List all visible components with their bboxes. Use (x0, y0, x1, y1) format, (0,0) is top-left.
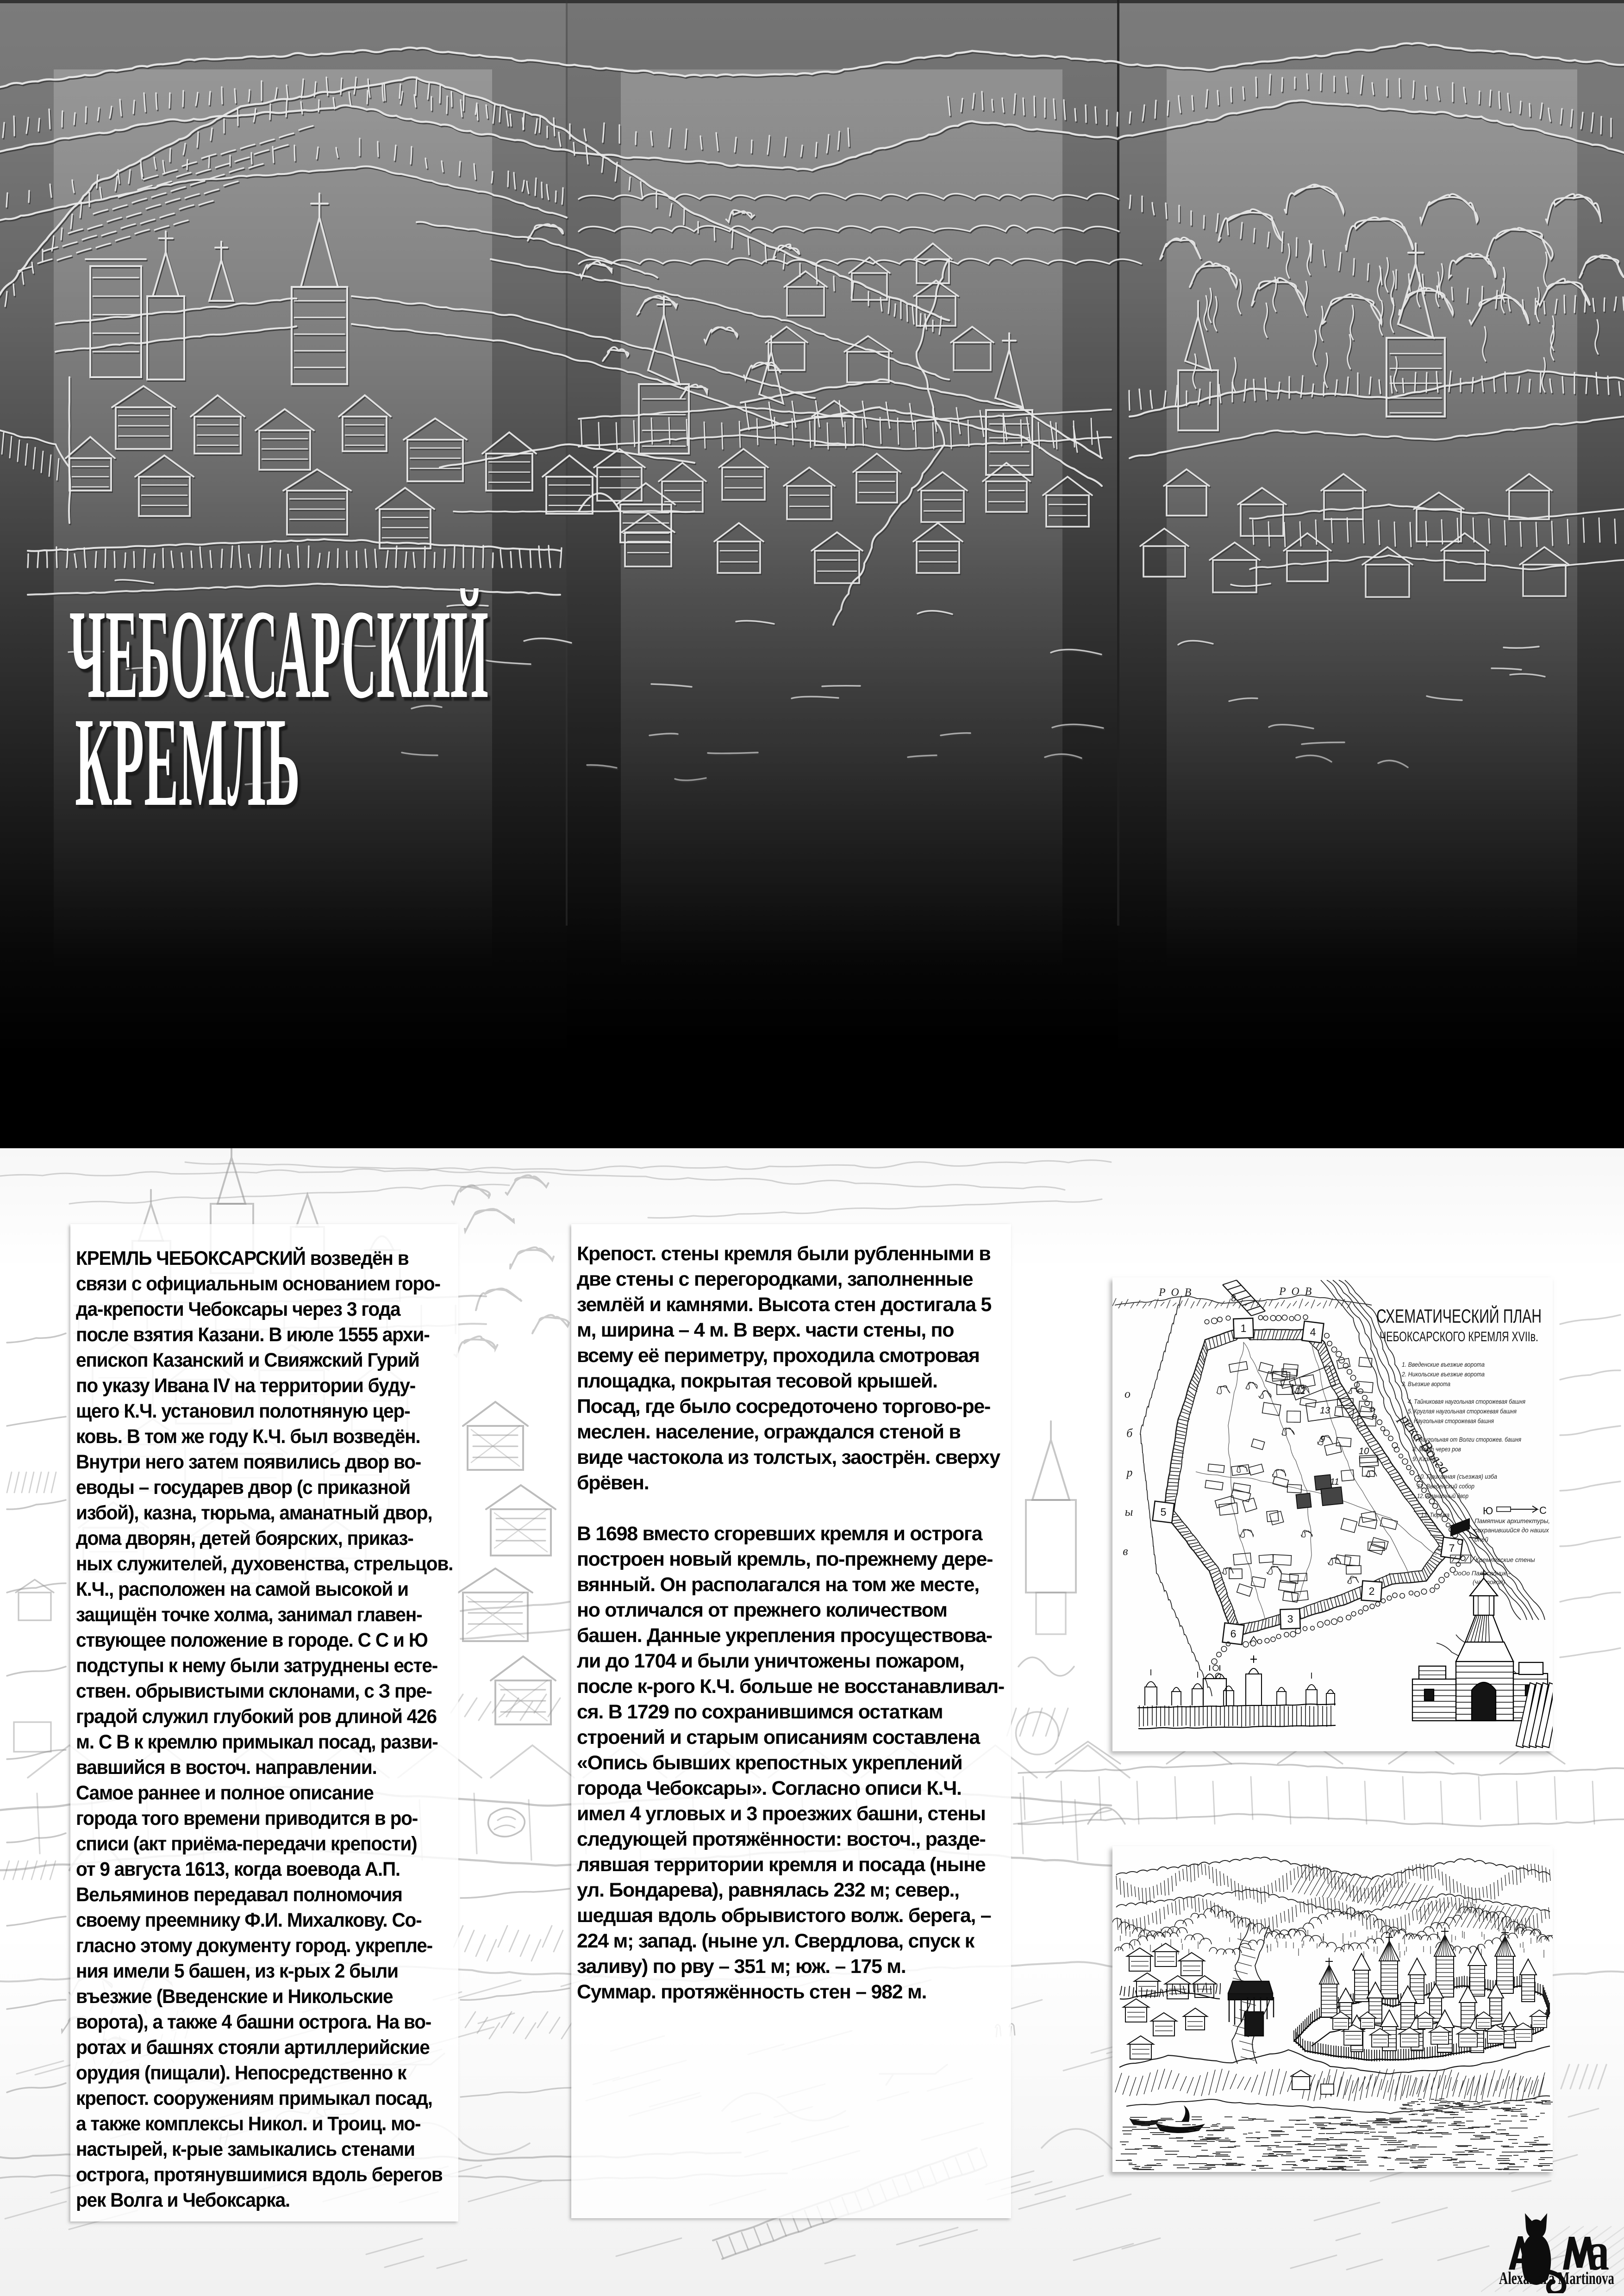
svg-text:3: 3 (1287, 1613, 1293, 1625)
svg-text:6. Наугольная сторожевая башня: 6. Наугольная сторожевая башня (1408, 1418, 1494, 1425)
svg-text:2: 2 (1369, 1585, 1375, 1597)
svg-text:ЧЕБОКСАРСКОГО КРЕМЛЯ XVIIв.: ЧЕБОКСАРСКОГО КРЕМЛЯ XVIIв. (1380, 1329, 1538, 1344)
svg-text:Памятник архитектуры,: Памятник архитектуры, (1474, 1518, 1550, 1524)
svg-text:о: о (1124, 1387, 1131, 1400)
svg-text:9. Казна: 9. Казна (1412, 1456, 1435, 1462)
svg-text:11. Введенский собор: 11. Введенский собор (1417, 1483, 1474, 1490)
svg-text:С: С (1539, 1505, 1547, 1516)
svg-text:дней: дней (1474, 1536, 1488, 1543)
svg-text:7. Наугольная от Волги стороже: 7. Наугольная от Волги сторожев. башня (1412, 1436, 1521, 1443)
svg-text:5: 5 (1161, 1506, 1167, 1518)
svg-text:9: 9 (1320, 1434, 1325, 1444)
svg-text:РОВ: РОВ (1158, 1287, 1197, 1299)
svg-text:Кремлевские стены: Кремлевские стены (1475, 1556, 1535, 1563)
svg-text:СХЕМАТИЧЕСКИЙ ПЛАН: СХЕМАТИЧЕСКИЙ ПЛАН (1376, 1305, 1542, 1327)
svg-text:РОВ: РОВ (1279, 1286, 1317, 1298)
svg-text:7: 7 (1449, 1542, 1455, 1554)
svg-text:Ю: Ю (1483, 1505, 1493, 1517)
svg-text:5. Круглая наугольная сторожев: 5. Круглая наугольная сторожевая башня (1408, 1408, 1517, 1415)
svg-text:б: б (1126, 1426, 1133, 1440)
svg-text:10. Приказная (съезжая) изба: 10. Приказная (съезжая) изба (1417, 1473, 1497, 1480)
svg-text:13: 13 (1320, 1406, 1330, 1416)
svg-text:ОоОо Палисадник -: ОоОо Палисадник - (1453, 1570, 1511, 1577)
svg-text:11: 11 (1330, 1477, 1339, 1487)
svg-text:1: 1 (1241, 1322, 1247, 1334)
svg-text:1. Введенские въезжие ворота: 1. Введенские въезжие ворота (1402, 1361, 1485, 1368)
svg-text:8: 8 (1231, 1294, 1236, 1304)
svg-text:6: 6 (1230, 1628, 1237, 1640)
svg-text:4: 4 (1310, 1326, 1316, 1338)
svg-text:р: р (1126, 1466, 1133, 1479)
svg-text:2. Никольские въезжие ворота: 2. Никольские въезжие ворота (1401, 1371, 1485, 1378)
svg-text:в: в (1123, 1544, 1128, 1558)
svg-text:8. Мост через ров: 8. Мост через ров (1412, 1446, 1461, 1453)
svg-text:ы: ы (1125, 1505, 1133, 1518)
svg-text:12. Аманатный двор: 12. Аманатный двор (1417, 1493, 1468, 1500)
svg-text:10: 10 (1359, 1446, 1369, 1456)
svg-text:3. Въезжие ворота: 3. Въезжие ворота (1402, 1381, 1450, 1388)
svg-text:4. Тайниковая наугольная сторо: 4. Тайниковая наугольная сторожевая башн… (1408, 1398, 1525, 1405)
svg-text:13. Тюрьма: 13. Тюрьма (1421, 1512, 1449, 1518)
svg-text:Alexandra Martinova: Alexandra Martinova (1499, 2269, 1614, 2289)
svg-text:12: 12 (1295, 1386, 1305, 1396)
svg-text:сохранившийся до наших: сохранившийся до наших (1474, 1527, 1549, 1534)
